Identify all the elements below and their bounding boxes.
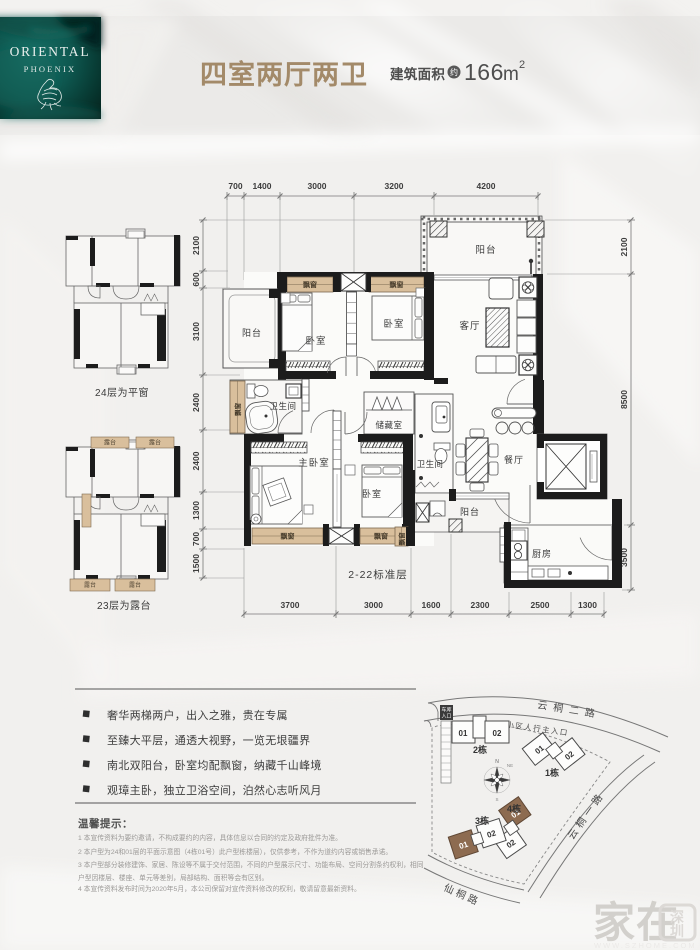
svg-text:阳台: 阳台 [460, 506, 480, 517]
svg-text:3700: 3700 [281, 600, 300, 610]
svg-text:卧室: 卧室 [362, 488, 382, 499]
svg-text:2500: 2500 [531, 600, 550, 610]
svg-text:观璋主卧，独立卫浴空间，泊然心志听风月: 观璋主卧，独立卫浴空间，泊然心志听风月 [107, 783, 322, 797]
svg-text:S: S [495, 797, 498, 802]
svg-text:4200: 4200 [477, 181, 496, 191]
svg-text:01: 01 [459, 729, 468, 738]
svg-text:m: m [503, 64, 519, 85]
svg-text:客厅: 客厅 [459, 320, 480, 332]
svg-text:露台: 露台 [129, 581, 141, 589]
svg-text:2栋: 2栋 [473, 744, 487, 755]
svg-text:1栋: 1栋 [545, 767, 559, 778]
svg-text:1300: 1300 [191, 501, 201, 520]
svg-text:卫生间: 卫生间 [269, 401, 296, 411]
svg-text:700: 700 [191, 532, 201, 546]
svg-text:飘窗: 飘窗 [374, 532, 388, 541]
svg-text:3200: 3200 [385, 181, 404, 191]
svg-text:四室两厅两卫: 四室两厅两卫 [200, 59, 368, 90]
svg-text:1500: 1500 [191, 554, 201, 573]
svg-text:3100: 3100 [191, 322, 201, 341]
svg-text:700: 700 [228, 181, 242, 191]
svg-text:户型因楼层、楼座、单元等差别，局部结构、面积等会有区别。: 户型因楼层、楼座、单元等差别，局部结构、面积等会有区别。 [78, 873, 268, 882]
svg-text:卫生间: 卫生间 [417, 459, 443, 469]
svg-text:4 本宣传资料发布时间为2020年5月，本公司保留对宣传资料: 4 本宣传资料发布时间为2020年5月，本公司保留对宣传资料修改的权利，敬请留意… [78, 884, 361, 893]
svg-text:露台: 露台 [84, 581, 96, 589]
svg-text:NE: NE [507, 763, 513, 768]
svg-text:圳: 圳 [670, 923, 684, 939]
svg-text:飘窗: 飘窗 [233, 402, 242, 416]
svg-text:飘窗: 飘窗 [397, 532, 406, 546]
svg-text:166: 166 [464, 59, 504, 85]
svg-text:露台: 露台 [104, 439, 116, 447]
svg-text:车库: 车库 [441, 707, 451, 714]
svg-text:2300: 2300 [471, 600, 490, 610]
svg-text:至臻大平层，通透大视野，一览无垠疆界: 至臻大平层，通透大视野，一览无垠疆界 [107, 733, 310, 747]
svg-text:3000: 3000 [308, 181, 327, 191]
svg-text:3 本户型部分装修建饰、家居、陈设等不属于交付范围，不同的户: 3 本户型部分装修建饰、家居、陈设等不属于交付范围，不同的户型展示尺寸、功能布局… [78, 860, 424, 869]
svg-text:建筑面积: 建筑面积 [389, 66, 445, 82]
svg-text:飘窗: 飘窗 [390, 280, 404, 289]
svg-text:N: N [495, 759, 499, 765]
svg-text:24层为平窗: 24层为平窗 [95, 386, 149, 399]
svg-text:入口: 入口 [441, 714, 451, 720]
svg-text:ORIENTAL: ORIENTAL [10, 44, 91, 59]
svg-text:南北双阳台，卧室均配飘窗，纳藏千山峰境: 南北双阳台，卧室均配飘窗，纳藏千山峰境 [107, 758, 322, 772]
svg-text:餐厅: 餐厅 [504, 454, 524, 465]
svg-text:2 本户型为24和01层的平面示意图（4栋01号）此户型栋楼: 2 本户型为24和01层的平面示意图（4栋01号）此户型栋楼层），仅供参考，不作… [78, 847, 392, 856]
svg-text:2100: 2100 [191, 236, 201, 255]
svg-text:储藏室: 储藏室 [375, 420, 402, 430]
svg-text:3000: 3000 [364, 600, 383, 610]
svg-text:WWW.SZHOME.COM: WWW.SZHOME.COM [594, 941, 697, 950]
svg-text:2400: 2400 [191, 393, 201, 412]
svg-text:4栋: 4栋 [507, 803, 521, 814]
svg-text:卧室: 卧室 [305, 335, 326, 347]
svg-text:23层为露台: 23层为露台 [97, 599, 151, 612]
svg-text:主卧室: 主卧室 [298, 457, 330, 469]
svg-text:温馨提示：: 温馨提示： [78, 817, 133, 830]
svg-text:约: 约 [450, 67, 458, 77]
svg-text:露台: 露台 [149, 439, 161, 447]
svg-text:2-22标准层: 2-22标准层 [348, 569, 408, 581]
svg-text:阳台: 阳台 [242, 327, 262, 338]
svg-text:奢华两梯两户，出入之雅，贵在专属: 奢华两梯两户，出入之雅，贵在专属 [107, 708, 288, 722]
svg-text:阳台: 阳台 [475, 244, 496, 256]
svg-text:3栋: 3栋 [475, 815, 489, 826]
svg-text:厨房: 厨房 [532, 548, 552, 559]
svg-text:600: 600 [191, 272, 201, 286]
svg-text:1400: 1400 [253, 181, 272, 191]
svg-text:卧室: 卧室 [383, 318, 404, 330]
svg-text:2400: 2400 [191, 451, 201, 470]
svg-text:飘窗: 飘窗 [303, 280, 317, 289]
svg-text:1 本宣传资料为要约邀请，不构成要约的内容，具体信息以合同的: 1 本宣传资料为要约邀请，不构成要约的内容，具体信息以合同的约定及政府批件为准。 [78, 833, 342, 842]
svg-text:02: 02 [493, 729, 502, 738]
svg-text:PHOENIX: PHOENIX [24, 64, 77, 74]
svg-text:2100: 2100 [619, 237, 629, 256]
svg-text:8500: 8500 [619, 390, 629, 409]
svg-text:1300: 1300 [578, 600, 597, 610]
svg-text:1600: 1600 [422, 600, 441, 610]
svg-text:2: 2 [519, 59, 525, 71]
svg-text:飘窗: 飘窗 [281, 532, 295, 541]
